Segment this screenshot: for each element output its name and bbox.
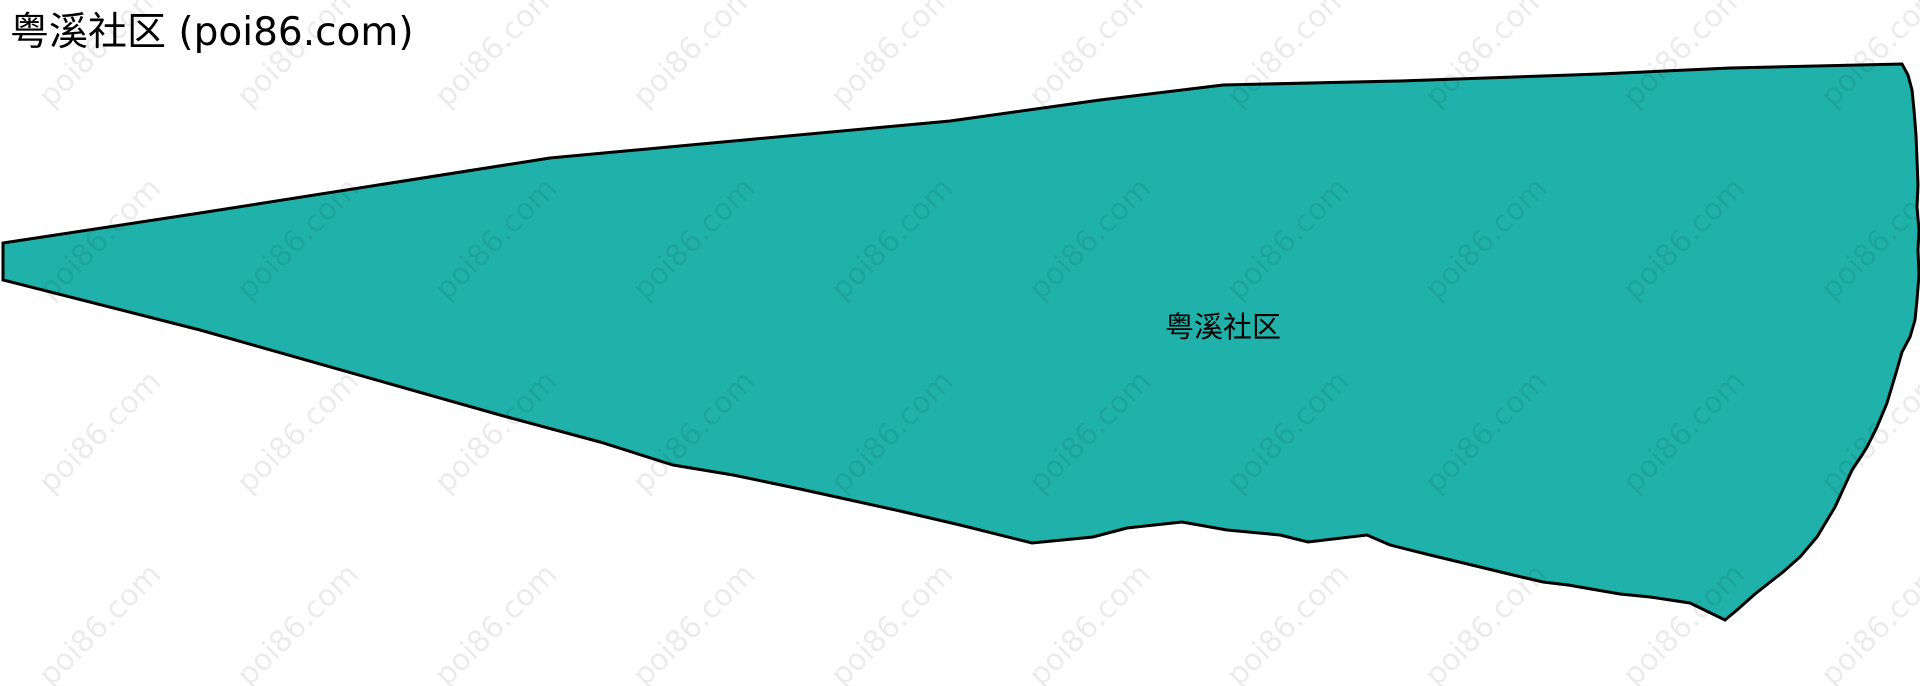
- region-polygon: [3, 64, 1919, 620]
- page-title: 粤溪社区 (poi86.com): [10, 10, 414, 57]
- map-canvas: [0, 0, 1920, 686]
- region-label: 粤溪社区: [1165, 310, 1281, 345]
- map-page: poi86.compoi86.compoi86.compoi86.compoi8…: [0, 0, 1920, 686]
